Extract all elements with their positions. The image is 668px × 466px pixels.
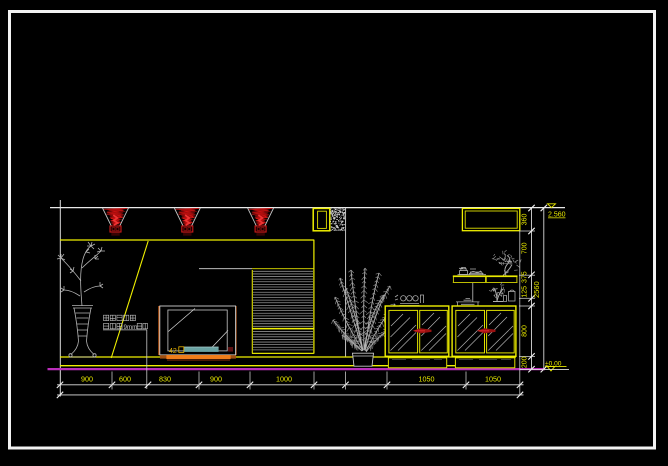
svg-text:900: 900 (210, 375, 222, 384)
svg-text:375: 375 (522, 271, 529, 283)
svg-text:2560: 2560 (532, 281, 541, 298)
svg-text:1050: 1050 (419, 375, 435, 384)
svg-text:600: 600 (119, 375, 131, 384)
svg-text:700: 700 (522, 242, 529, 254)
svg-text:360: 360 (522, 214, 529, 226)
svg-text:200: 200 (522, 356, 529, 368)
svg-text:1000: 1000 (276, 375, 292, 384)
svg-text:830: 830 (159, 375, 171, 384)
svg-text:42: 42 (169, 348, 177, 355)
svg-text:1050: 1050 (485, 375, 501, 384)
svg-text:800: 800 (522, 325, 529, 337)
svg-text:900: 900 (81, 375, 93, 384)
svg-text:125: 125 (522, 286, 529, 298)
